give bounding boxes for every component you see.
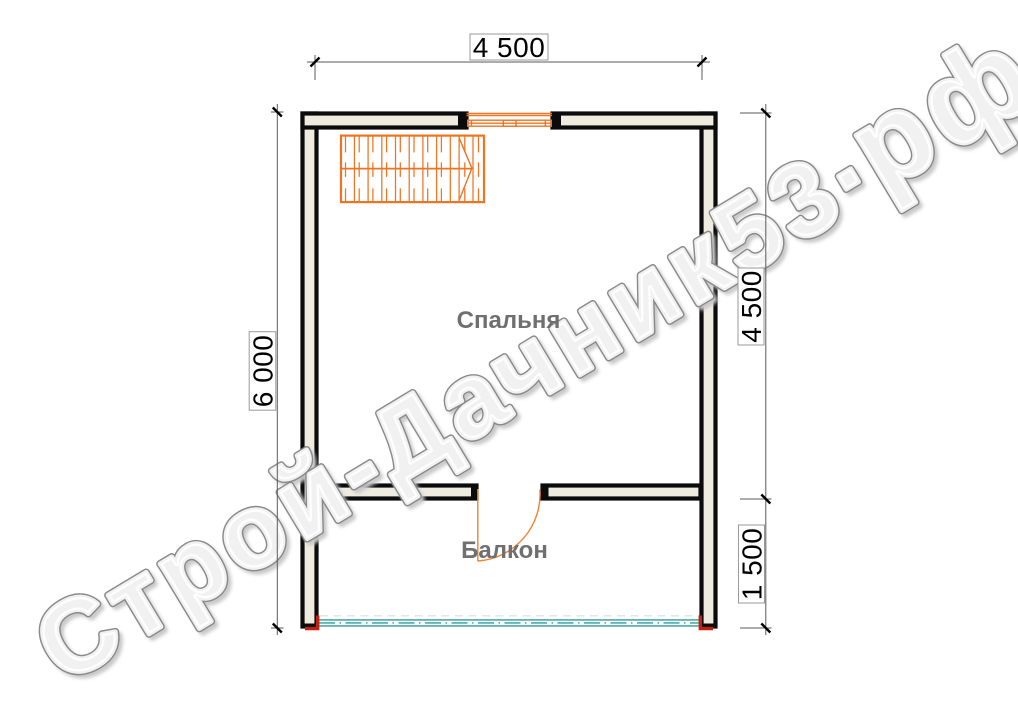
svg-text:4 500: 4 500 — [736, 270, 767, 343]
svg-text:Балкон: Балкон — [461, 537, 548, 564]
svg-text:1 500: 1 500 — [737, 528, 768, 601]
svg-text:Спальня: Спальня — [457, 307, 561, 334]
svg-text:4 500: 4 500 — [473, 32, 546, 63]
svg-text:6 000: 6 000 — [248, 335, 279, 408]
